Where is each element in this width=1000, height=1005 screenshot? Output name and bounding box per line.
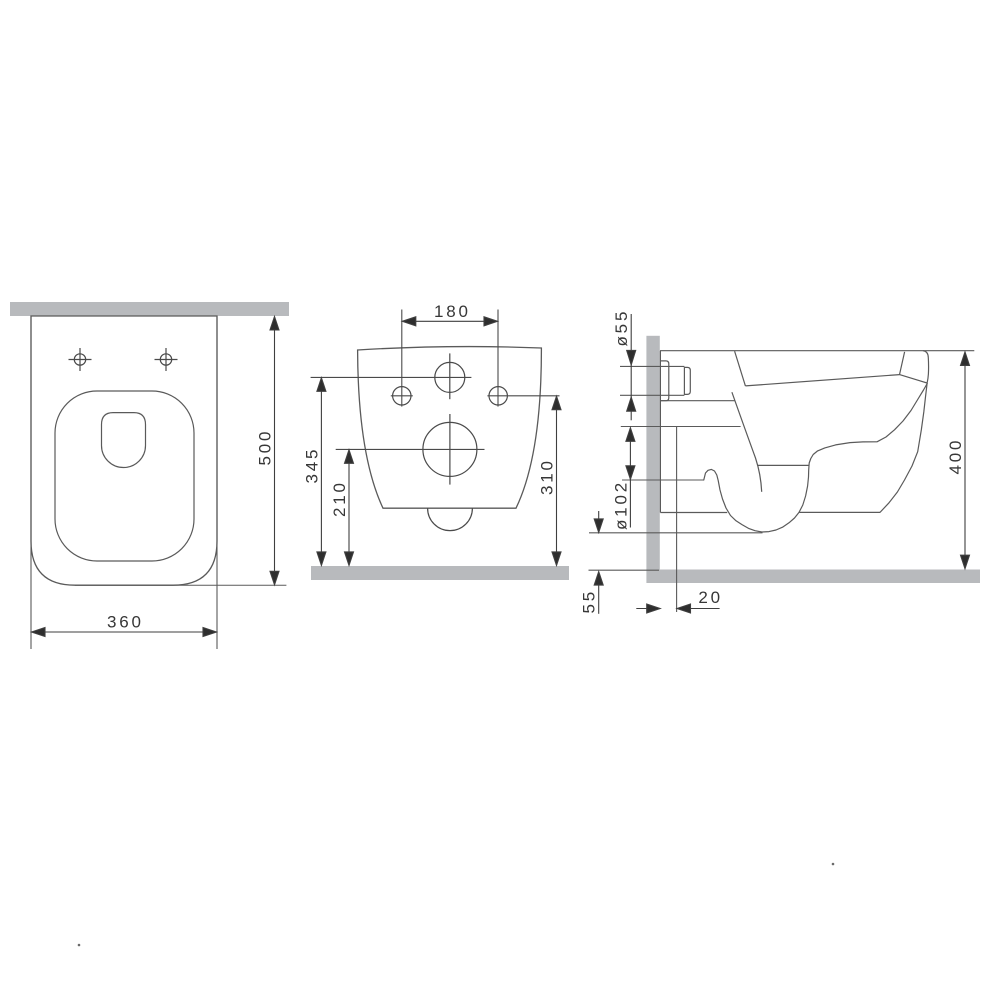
svg-text:55: 55 bbox=[580, 589, 599, 614]
svg-text:180: 180 bbox=[434, 302, 471, 321]
svg-text:310: 310 bbox=[538, 458, 557, 495]
svg-text:ø55: ø55 bbox=[612, 309, 631, 347]
svg-text:400: 400 bbox=[946, 438, 965, 475]
svg-text:20: 20 bbox=[698, 588, 723, 607]
svg-text:360: 360 bbox=[107, 613, 144, 632]
svg-text:345: 345 bbox=[302, 447, 321, 484]
svg-text:210: 210 bbox=[330, 480, 349, 517]
svg-text:500: 500 bbox=[256, 429, 275, 466]
svg-text:ø102: ø102 bbox=[612, 480, 631, 530]
